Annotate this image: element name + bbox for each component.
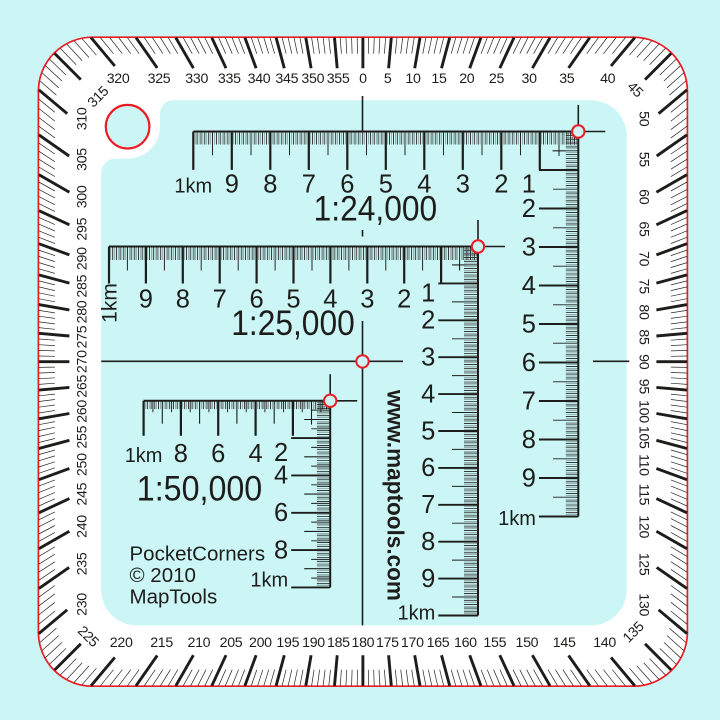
svg-text:1km: 1km [250, 570, 288, 592]
svg-text:190: 190 [302, 635, 325, 651]
svg-text:2: 2 [494, 171, 508, 199]
svg-text:1km: 1km [398, 603, 436, 625]
svg-text:285: 285 [74, 274, 90, 297]
svg-text:1:50,000: 1:50,000 [137, 470, 262, 509]
svg-text:205: 205 [220, 635, 243, 651]
svg-text:180: 180 [352, 635, 375, 651]
svg-text:3: 3 [522, 233, 536, 261]
svg-text:140: 140 [593, 635, 616, 651]
svg-text:275: 275 [74, 325, 90, 348]
svg-text:300: 300 [74, 185, 90, 208]
svg-text:4: 4 [421, 380, 435, 408]
svg-text:270: 270 [74, 350, 90, 373]
svg-text:240: 240 [74, 515, 90, 538]
svg-text:MapTools: MapTools [130, 586, 218, 609]
svg-text:280: 280 [74, 300, 90, 323]
svg-text:165: 165 [427, 635, 450, 651]
svg-text:330: 330 [185, 71, 208, 87]
svg-text:9: 9 [225, 171, 239, 199]
svg-text:PocketCorners: PocketCorners [130, 543, 266, 566]
svg-text:8: 8 [274, 536, 288, 564]
svg-text:55: 55 [636, 152, 652, 168]
svg-text:30: 30 [522, 71, 538, 87]
svg-text:115: 115 [636, 484, 652, 506]
svg-text:290: 290 [74, 247, 90, 270]
svg-text:105: 105 [636, 426, 652, 449]
svg-text:7: 7 [213, 286, 227, 314]
svg-text:125: 125 [636, 553, 652, 576]
svg-text:120: 120 [636, 515, 652, 538]
svg-text:85: 85 [636, 329, 652, 345]
svg-text:155: 155 [483, 635, 506, 651]
svg-text:345: 345 [275, 71, 298, 87]
svg-text:5: 5 [421, 417, 435, 445]
svg-text:1km: 1km [99, 283, 122, 323]
svg-text:9: 9 [421, 565, 435, 593]
svg-text:70: 70 [636, 251, 652, 267]
svg-text:8: 8 [421, 528, 435, 556]
svg-text:170: 170 [401, 635, 424, 651]
svg-text:7: 7 [522, 387, 536, 415]
svg-text:150: 150 [516, 635, 539, 651]
svg-text:5: 5 [384, 71, 392, 87]
svg-text:1km: 1km [498, 508, 536, 530]
svg-text:245: 245 [74, 482, 90, 505]
svg-text:2: 2 [522, 195, 536, 223]
svg-text:25: 25 [489, 71, 505, 87]
svg-text:210: 210 [188, 635, 211, 651]
svg-text:6: 6 [274, 499, 288, 527]
svg-text:2: 2 [397, 286, 411, 314]
svg-text:340: 340 [248, 71, 271, 87]
svg-text:145: 145 [553, 635, 576, 651]
svg-text:8: 8 [176, 286, 190, 314]
svg-text:3: 3 [360, 286, 374, 314]
svg-text:0: 0 [359, 71, 367, 87]
svg-text:40: 40 [600, 71, 616, 87]
svg-text:6: 6 [522, 349, 536, 377]
svg-text:6: 6 [211, 440, 225, 468]
svg-text:90: 90 [636, 354, 652, 370]
svg-text:80: 80 [636, 304, 652, 320]
svg-text:1km: 1km [125, 445, 163, 467]
svg-text:4: 4 [274, 462, 288, 490]
svg-text:310: 310 [74, 107, 90, 130]
svg-text:3: 3 [421, 344, 435, 372]
svg-text:260: 260 [74, 400, 90, 423]
svg-text:325: 325 [148, 71, 171, 87]
svg-text:50: 50 [636, 111, 652, 127]
svg-text:5: 5 [522, 310, 536, 338]
svg-text:250: 250 [74, 453, 90, 476]
svg-text:305: 305 [74, 148, 90, 171]
svg-text:4: 4 [249, 440, 263, 468]
svg-text:9: 9 [139, 286, 153, 314]
svg-text:8: 8 [522, 426, 536, 454]
svg-text:230: 230 [74, 593, 90, 616]
svg-text:65: 65 [636, 221, 652, 237]
svg-text:195: 195 [276, 635, 299, 651]
svg-text:3: 3 [456, 171, 470, 199]
svg-text:235: 235 [74, 552, 90, 575]
svg-text:2: 2 [421, 307, 435, 335]
svg-text:20: 20 [459, 71, 475, 87]
svg-text:320: 320 [107, 71, 130, 87]
svg-text:95: 95 [636, 379, 652, 395]
svg-text:© 2010: © 2010 [130, 564, 196, 587]
svg-text:75: 75 [636, 279, 652, 295]
svg-text:335: 335 [218, 71, 241, 87]
svg-text:1km: 1km [174, 176, 212, 198]
svg-text:185: 185 [327, 635, 350, 651]
svg-text:60: 60 [636, 189, 652, 205]
svg-text:10: 10 [405, 71, 421, 87]
svg-text:160: 160 [454, 635, 477, 651]
svg-text:175: 175 [376, 635, 399, 651]
svg-text:350: 350 [301, 71, 324, 87]
svg-text:7: 7 [421, 491, 435, 519]
svg-text:200: 200 [249, 635, 272, 651]
svg-text:9: 9 [522, 464, 536, 492]
svg-text:255: 255 [74, 425, 90, 448]
svg-text:8: 8 [263, 171, 277, 199]
svg-text:6: 6 [421, 454, 435, 482]
svg-text:100: 100 [636, 400, 652, 423]
svg-text:130: 130 [636, 593, 652, 616]
svg-text:265: 265 [74, 375, 90, 398]
svg-text:220: 220 [110, 635, 133, 651]
svg-text:110: 110 [636, 454, 652, 476]
svg-text:35: 35 [559, 71, 575, 87]
svg-text:8: 8 [174, 440, 188, 468]
svg-text:4: 4 [522, 272, 536, 300]
svg-text:www.maptools.com: www.maptools.com [383, 389, 409, 601]
svg-text:1:25,000: 1:25,000 [231, 304, 355, 343]
svg-text:1: 1 [421, 280, 435, 308]
svg-text:215: 215 [150, 635, 173, 651]
svg-text:355: 355 [327, 71, 350, 87]
svg-text:15: 15 [431, 71, 447, 87]
svg-text:295: 295 [74, 217, 90, 240]
svg-text:1:24,000: 1:24,000 [314, 190, 438, 229]
